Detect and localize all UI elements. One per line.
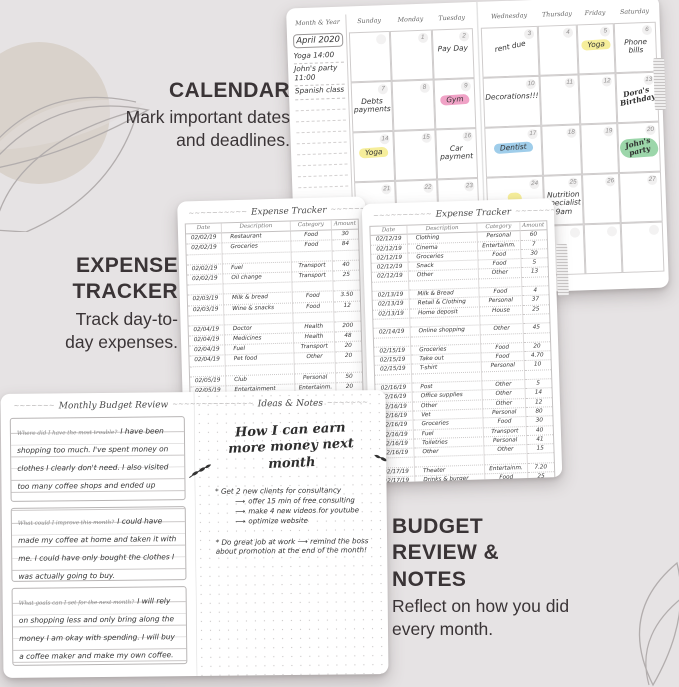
day-event: Yoga — [354, 147, 394, 159]
month-year-header: Month & Year — [292, 15, 343, 35]
budget-review-spread: Monthly Budget Review Where did I have t… — [1, 390, 389, 678]
leaf-decoration-bottom-right — [565, 557, 679, 687]
day-event: Debts payments — [352, 97, 392, 115]
calendar-day-cell: 16Car payment — [435, 128, 478, 179]
calendar-day-cell: 5Yoga — [577, 23, 616, 74]
day-number: 18 — [566, 128, 576, 138]
notes-arrow-item: ⟶offer 15 min of free consulting — [235, 496, 378, 505]
arrow-icon: ⟶ — [235, 518, 244, 526]
budget-review-page: Monthly Budget Review Where did I have t… — [1, 392, 196, 678]
calendar-day-cell: 18 — [542, 124, 582, 175]
calendar-day-cell: 4 — [538, 24, 578, 75]
notes-bullet-2: * Do great job at work ⟶ remind the boss… — [216, 536, 375, 556]
expense-tracker-right-page: Expense Tracker DateDescriptionCategoryA… — [362, 198, 563, 483]
day-number: 8 — [419, 83, 429, 93]
expense-amount: 30 — [332, 230, 358, 241]
day-event: Dora's Birthday — [617, 88, 657, 106]
calendar-day-cell: 17Dentist — [484, 126, 543, 178]
notes-heading-text: How I can earn more money next month — [228, 421, 354, 472]
day-event: Phone bills — [616, 38, 656, 56]
day-number: 23 — [464, 181, 474, 191]
expense-label-block: EXPENSE TRACKER Track day-to-day expense… — [53, 253, 178, 354]
day-number: 10 — [526, 79, 536, 89]
calendar-day-cell: 7Debts payments — [351, 81, 394, 132]
budget-label-block: BUDGET REVIEW & NOTES Reflect on how you… — [392, 514, 572, 641]
day-number: 21 — [382, 184, 392, 194]
calendar-day-cell — [349, 31, 392, 82]
day-number — [607, 226, 617, 236]
calendar-day-cell: 26 — [582, 173, 621, 224]
expense-amount — [333, 250, 359, 261]
calendar-day-cell: 27 — [619, 172, 662, 223]
day-number: 12 — [602, 76, 612, 86]
calendar-label-block: CALENDAR Mark important dates and deadli… — [94, 78, 290, 152]
ideas-notes-title: Ideas & Notes — [204, 398, 377, 410]
budget-prompt: What goals can I set for the next month? — [19, 600, 135, 607]
expense-category: Food — [486, 473, 529, 483]
calendar-label-desc: Mark important dates and deadlines. — [94, 106, 290, 152]
arrow-icon: ⟶ — [235, 508, 244, 516]
day-number: 27 — [647, 175, 657, 185]
planner-product-image: CALENDAR Mark important dates and deadli… — [0, 0, 679, 679]
budget-label-title: BUDGET REVIEW & NOTES — [392, 514, 572, 593]
budget-prompt: What could I improve this month? — [18, 520, 114, 527]
expense-amount — [334, 311, 360, 322]
budget-answer: I have been shopping too much. I've spen… — [17, 426, 168, 502]
day-number: 15 — [421, 133, 431, 143]
expense-column-header: Amount — [332, 220, 358, 231]
day-number: 2 — [459, 31, 469, 41]
day-header: Thursday — [537, 6, 576, 25]
expense-amount: 25 — [333, 271, 359, 282]
calendar-day-cell: 1 — [390, 30, 433, 81]
event-highlight: Yoga — [359, 147, 389, 159]
day-number: 22 — [423, 183, 433, 193]
day-header: Tuesday — [431, 10, 473, 29]
budget-section: Where did I have the most trouble?I have… — [10, 416, 185, 502]
day-event: Car payment — [437, 144, 477, 162]
expense-category: House — [486, 482, 529, 483]
day-number: 7 — [378, 84, 388, 94]
calendar-day-cell: 11 — [540, 74, 580, 125]
notes-arrow-item: ⟶make 4 new videos for youtube — [235, 506, 378, 515]
event-highlight: Gym — [440, 94, 470, 106]
day-header: Saturday — [613, 4, 655, 23]
day-number — [376, 34, 386, 44]
calendar-day-cell: 2Pay Day — [431, 28, 474, 79]
expense-amount: 20 — [336, 352, 362, 363]
day-header: Friday — [576, 5, 614, 24]
day-number: 6 — [642, 25, 652, 35]
calendar-day-cell: 8 — [392, 80, 435, 131]
day-number: 19 — [604, 126, 614, 136]
day-event: Dentist — [486, 142, 542, 154]
event-highlight: John's party — [620, 137, 659, 158]
day-number: 13 — [644, 75, 654, 85]
calendar-label-title: CALENDAR — [94, 78, 290, 104]
day-number: 17 — [528, 129, 538, 139]
day-number: 4 — [563, 28, 573, 38]
expense-description: Drinks & burger — [415, 474, 486, 483]
budget-section: What goals can I set for the next month?… — [12, 586, 187, 666]
calendar-day-cell: 9Gym — [433, 78, 476, 129]
day-number: 9 — [461, 81, 471, 91]
day-number: 5 — [600, 26, 610, 36]
day-event: John's party — [619, 138, 659, 158]
day-number — [649, 225, 659, 235]
event-highlight: Yoga — [581, 39, 611, 51]
notes-arrow-list: ⟶offer 15 min of free consulting⟶make 4 … — [205, 496, 378, 526]
expense-amount: 40 — [333, 260, 359, 271]
ideas-notes-page: Ideas & Notes How I can earn more money … — [195, 390, 388, 676]
day-number: 3 — [524, 29, 534, 39]
expense-left-title: Expense Tracker — [184, 205, 358, 220]
expense-right-title: Expense Tracker — [369, 206, 547, 222]
day-number: 16 — [462, 131, 472, 141]
event-highlight: Dentist — [494, 141, 533, 154]
day-number — [570, 227, 580, 237]
sidebar-note: John's party 11:00 — [294, 63, 345, 87]
expense-amount: 50 — [336, 372, 362, 383]
calendar-day-cell: 20John's party — [618, 122, 661, 173]
budget-label-desc: Reflect on how you did every month. — [392, 595, 572, 641]
day-event-text: Dora's Birthday — [617, 85, 657, 109]
expense-right-table: DateDescriptionCategoryAmount02/12/19Clo… — [369, 220, 555, 483]
calendar-day-cell: 14Yoga — [352, 131, 395, 182]
day-number: 24 — [529, 179, 539, 189]
day-header: Wednesday — [480, 8, 538, 28]
calendar-day-cell: 12 — [578, 73, 617, 124]
expense-amount: 48 — [335, 332, 361, 343]
day-number: 14 — [380, 134, 390, 144]
budget-section: What could I improve this month?I could … — [11, 506, 186, 582]
expense-amount: 3.50 — [334, 291, 360, 302]
arrow-icon: ⟶ — [235, 498, 244, 506]
day-event-text: rent due — [494, 40, 526, 55]
day-event-text: John's party — [625, 137, 654, 159]
calendar-day-cell — [584, 223, 623, 274]
day-number: 1 — [418, 33, 428, 43]
sidebar-notes: Yoga 14:00John's party 11:00Spanish clas… — [294, 50, 349, 188]
expense-amount: 20 — [335, 342, 361, 353]
calendar-day-cell: 19 — [580, 123, 619, 174]
day-number: 25 — [568, 178, 578, 188]
budget-review-title: Monthly Budget Review — [10, 400, 185, 412]
leaf-doodle-icon — [186, 461, 213, 480]
calendar-day-cell: 15 — [394, 129, 437, 180]
expense-amount: 12 — [334, 301, 360, 312]
expense-label-desc: Track day-to-day expenses. — [53, 308, 178, 354]
day-event: Pay Day — [433, 44, 473, 54]
notes-heading: How I can earn more money next month — [215, 420, 367, 476]
expense-label-title: EXPENSE TRACKER — [53, 253, 178, 306]
budget-sections: Where did I have the most trouble?I have… — [10, 416, 187, 666]
day-event: Yoga — [578, 39, 614, 51]
day-number: 26 — [605, 176, 615, 186]
leaf-doodle-icon — [372, 451, 388, 470]
notes-arrow-item: ⟶optimize website — [235, 516, 378, 525]
calendar-day-cell — [621, 222, 664, 273]
page-stack-edge — [556, 244, 569, 296]
day-event: Gym — [435, 94, 475, 106]
day-event: Decorations!!! — [484, 92, 540, 102]
day-number: 20 — [645, 125, 655, 135]
expense-amount: 85 — [528, 481, 555, 482]
expense-left-table: DateDescriptionCategoryAmount02/02/19Res… — [185, 219, 365, 410]
calendar-day-cell: 3rent due — [481, 26, 540, 78]
month-value: April 2020 — [293, 33, 343, 49]
sidebar-empty-line — [298, 175, 348, 188]
expense-tracker-left-page: Expense Tracker DateDescriptionCategoryA… — [177, 196, 371, 409]
day-header: Sunday — [348, 13, 390, 32]
budget-prompt: Where did I have the most trouble? — [17, 430, 117, 437]
day-number: 11 — [564, 78, 574, 88]
calendar-day-cell: 13Dora's Birthday — [616, 72, 659, 123]
calendar-day-cell: 6Phone bills — [614, 22, 657, 73]
page-stack-edge — [653, 58, 666, 110]
day-event: rent due — [482, 42, 538, 52]
notes-bullet-1: * Get 2 new clients for consultancy — [215, 485, 374, 496]
day-header: Monday — [390, 12, 432, 31]
expense-amount: 25 — [528, 472, 555, 482]
calendar-day-cell: 10Decorations!!! — [483, 76, 542, 128]
